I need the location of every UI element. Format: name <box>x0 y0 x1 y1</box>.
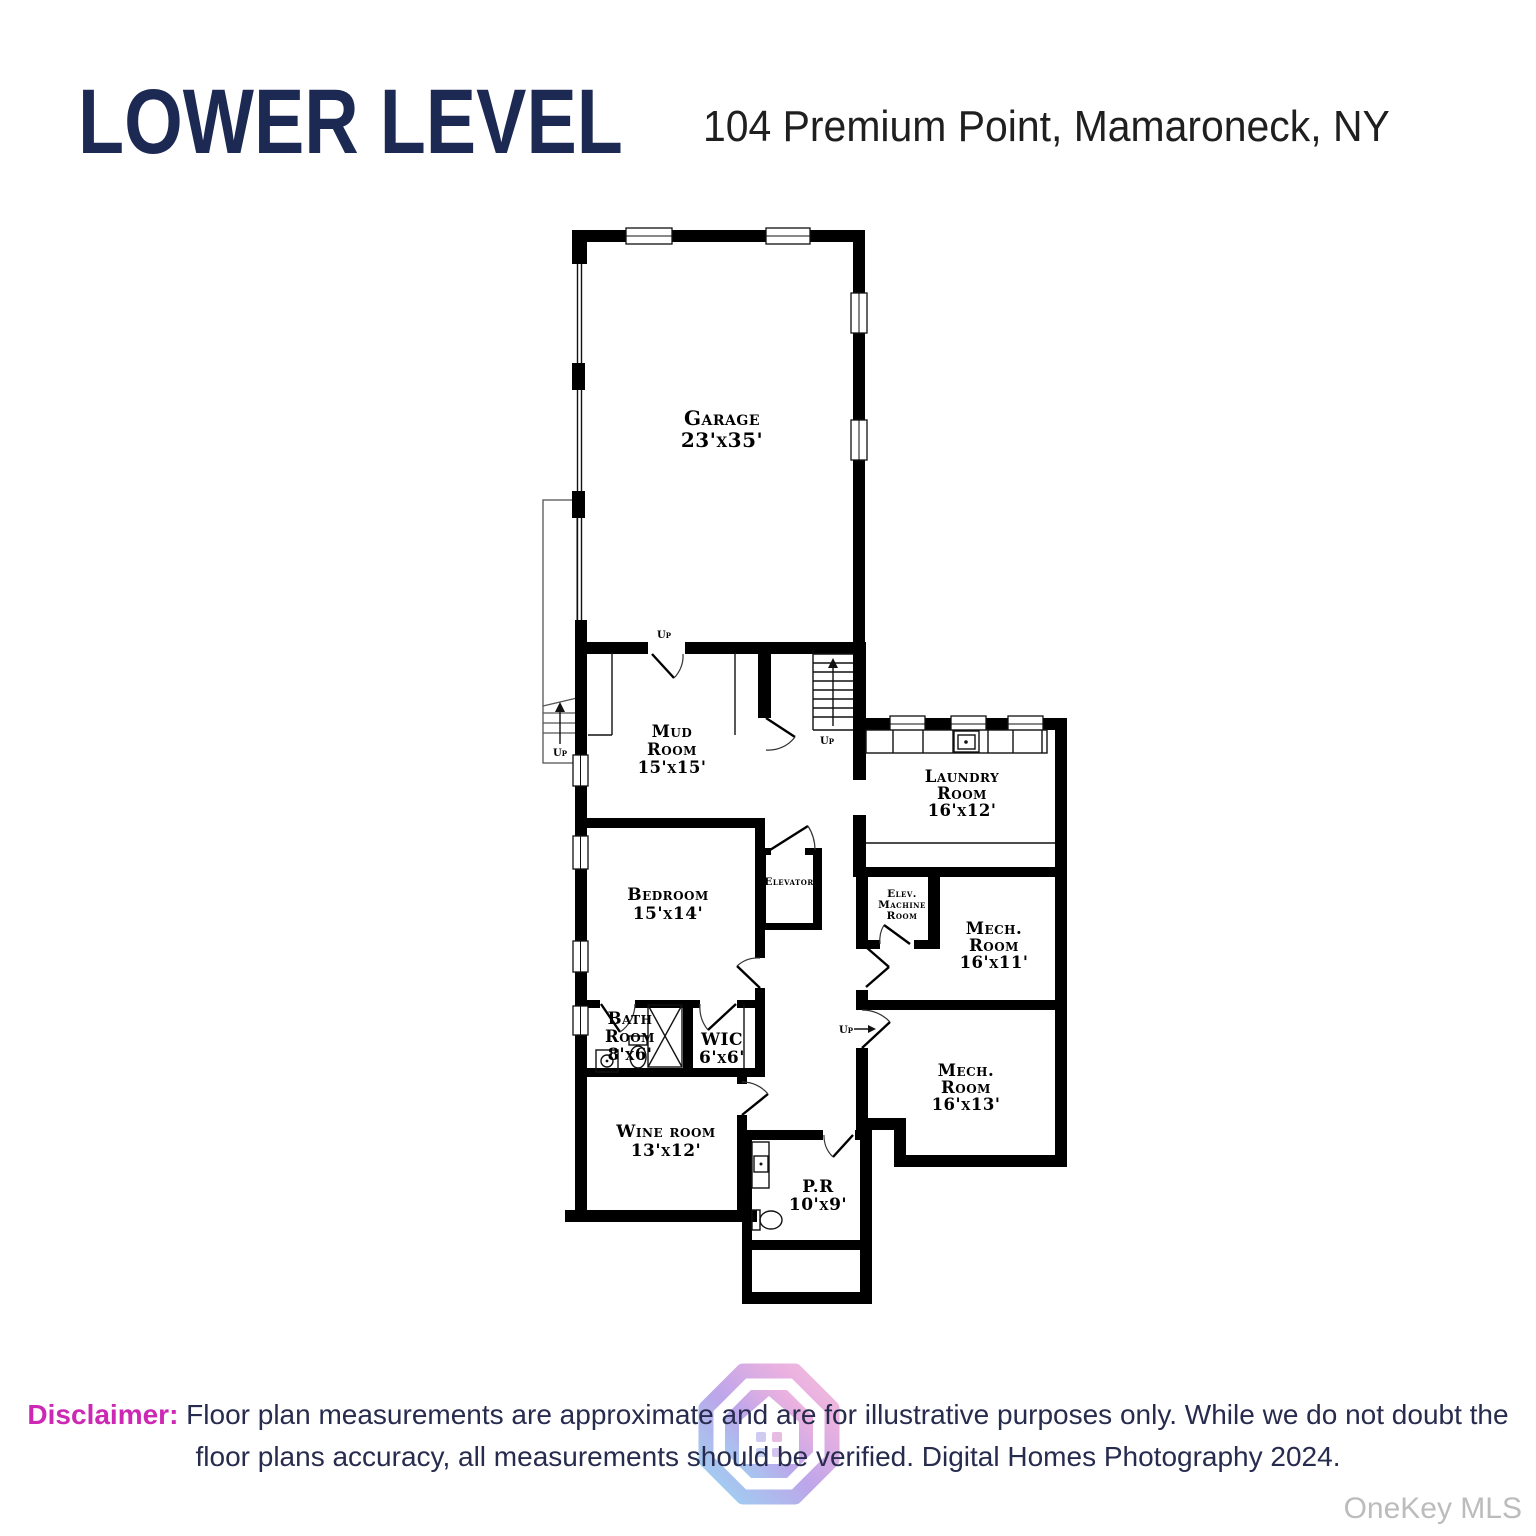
wine-room-dims: 13'x12' <box>631 1141 702 1161</box>
exterior-stair-left <box>543 500 577 763</box>
mud-room-label: Mud <box>652 722 693 741</box>
wic-label: WIC <box>700 1030 743 1050</box>
interior-stairs <box>813 650 853 730</box>
wic-dims: 6'x6' <box>699 1048 745 1068</box>
up-label-stairs: Up <box>820 736 835 747</box>
mud-room-label2: Room <box>647 740 697 759</box>
garage-dims: 23'x35' <box>681 428 763 452</box>
mls-brand: OneKey MLS <box>1344 1492 1522 1526</box>
elevator-label: Elevator <box>764 876 813 888</box>
up-label-garage: Up <box>657 630 672 641</box>
floor-plan: Garage 23'x35' Mud Room 15'x15' Laundry … <box>0 0 1536 1536</box>
up-right-arrow-icon <box>854 1025 876 1033</box>
elev-machine-label3: Room <box>887 910 918 922</box>
up-label-ext-right: Up <box>839 1025 854 1036</box>
mud-room-dims: 15'x15' <box>638 758 707 777</box>
bedroom-dims: 15'x14' <box>633 904 704 924</box>
pr-label: P.R <box>802 1177 834 1197</box>
garage-label: Garage <box>684 406 760 430</box>
bath-dims: 8'x6' <box>608 1045 653 1064</box>
bath-label2: Room <box>605 1027 655 1046</box>
disclaimer-label: Disclaimer: <box>27 1399 178 1430</box>
up-label-ext-left: Up <box>553 748 568 759</box>
mech11-dims: 16'x11' <box>960 953 1029 972</box>
pr-dims: 10'x9' <box>789 1195 847 1215</box>
laundry-dims: 16'x12' <box>928 801 997 820</box>
bath-label: Bath <box>608 1009 653 1028</box>
disclaimer-text1: Floor plan measurements are approximate … <box>186 1399 1508 1430</box>
disclaimer: Disclaimer: Floor plan measurements are … <box>0 1394 1536 1478</box>
bedroom-label: Bedroom <box>627 885 709 905</box>
mech13-dims: 16'x13' <box>932 1095 1001 1114</box>
disclaimer-line1: Disclaimer: Floor plan measurements are … <box>0 1394 1536 1436</box>
wine-room-label: Wine room <box>615 1122 715 1142</box>
disclaimer-line2: floor plans accuracy, all measurements s… <box>0 1436 1536 1478</box>
page: LOWER LEVEL 104 Premium Point, Mamaronec… <box>0 0 1536 1536</box>
